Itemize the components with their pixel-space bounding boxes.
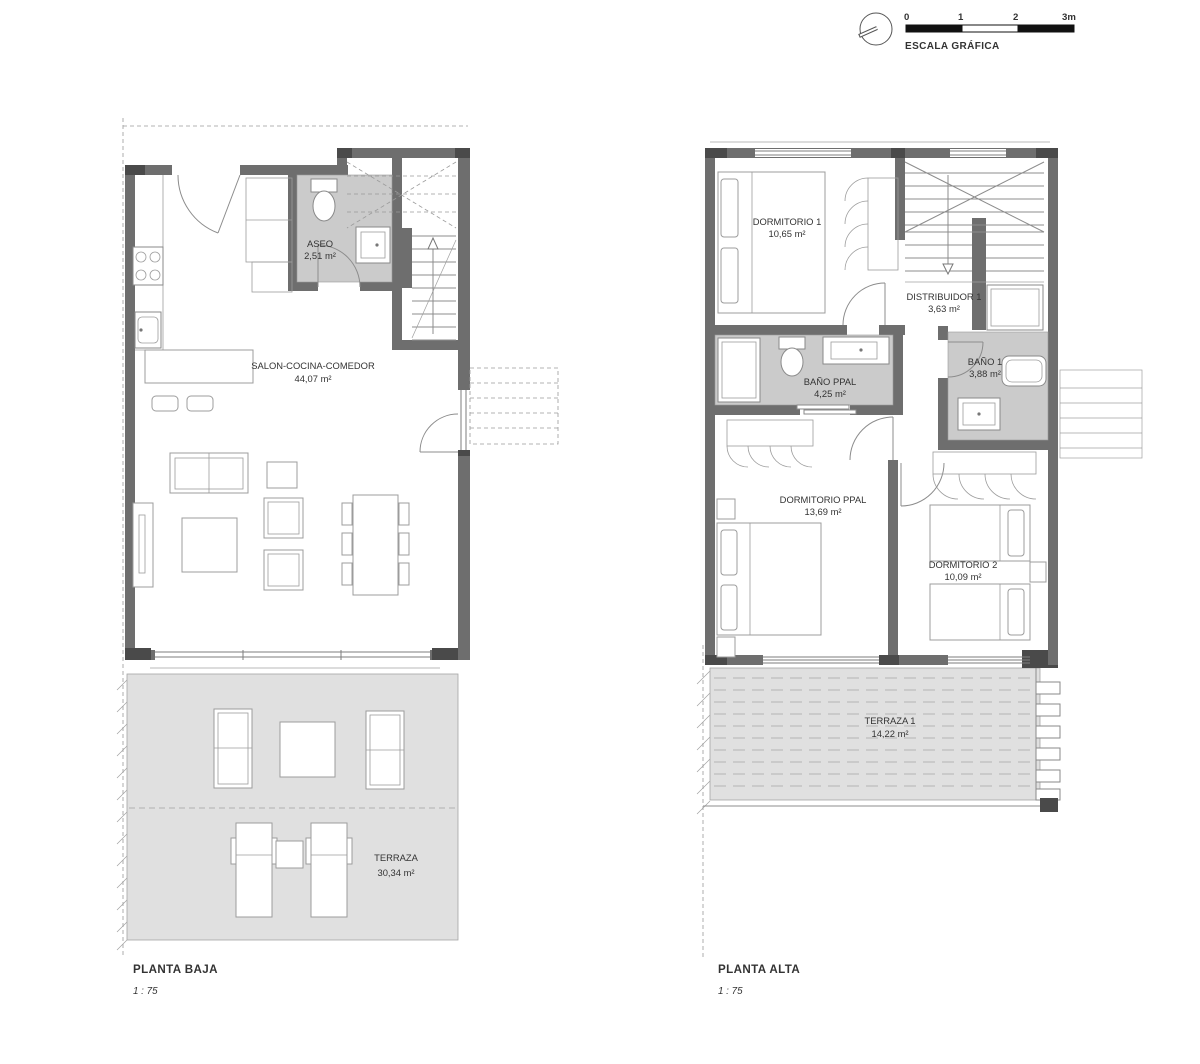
planta-alta-title: PLANTA ALTA [718, 963, 800, 976]
side-table-icon [276, 841, 303, 868]
shower-icon [718, 338, 760, 402]
terrace-floor [127, 674, 458, 940]
sun-lounger-icon [231, 823, 277, 917]
toilet-icon [311, 179, 337, 221]
column [705, 148, 727, 158]
terrace-door-icon [420, 414, 458, 452]
scale-tick-1: 1 [958, 12, 964, 23]
outdoor-table-icon [280, 722, 335, 777]
entrance-door-icon [178, 175, 240, 233]
planta-baja-title: PLANTA BAJA [133, 963, 218, 976]
room-label-bano-ppal-name: BAÑO PPAL [804, 376, 856, 387]
hob-icon [133, 247, 163, 285]
scale-bar-segment [962, 25, 1018, 32]
column [337, 148, 352, 158]
outdoor-chair-icon [366, 711, 404, 789]
scale-tick-2: 2 [1013, 12, 1018, 23]
dorm2-door-icon [901, 463, 944, 506]
toilet-icon [779, 337, 805, 376]
room-label-terraza-name: TERRAZA [374, 852, 419, 863]
room-label-dormitorio-ppal-area: 13,69 m² [805, 506, 842, 517]
room-label-dormitorio-ppal-name: DORMITORIO PPAL [780, 494, 867, 505]
column [891, 148, 905, 158]
planta-baja-plan: TERRAZA 30,34 m² [117, 118, 558, 997]
dorm1-door-icon [843, 283, 885, 325]
room-label-distribuidor1-area: 3,63 m² [928, 303, 960, 314]
room-label-distribuidor1-name: DISTRIBUIDOR 1 [906, 291, 981, 302]
column [125, 648, 151, 660]
tv-unit-icon [133, 503, 153, 587]
room-label-aseo-area: 2,51 m² [304, 250, 336, 261]
planta-alta-plan: TERRAZA 1 14,22 m² [697, 142, 1142, 997]
room-label-dormitorio1-area: 10,65 m² [769, 228, 806, 239]
washbasin-icon [356, 227, 390, 263]
washbasin-icon [958, 398, 1000, 430]
room-label-terraza-area: 30,34 m² [378, 867, 415, 878]
scale-tick-0: 0 [904, 12, 909, 23]
bed-icon [717, 499, 821, 657]
planta-baja-scale: 1 : 75 [133, 986, 158, 997]
exterior-platform [470, 368, 558, 444]
room-label-bano1-name: BAÑO 1 [968, 356, 1002, 367]
sofa-icon [170, 453, 248, 493]
scale-bar-caption: ESCALA GRÁFICA [905, 39, 1000, 52]
column [432, 648, 458, 660]
dorm-ppal-door-icon [850, 417, 893, 460]
room-label-bano-ppal-area: 4,25 m² [814, 388, 846, 399]
planta-alta-scale: 1 : 75 [718, 986, 743, 997]
room-label-dormitorio1-name: DORMITORIO 1 [753, 216, 822, 227]
scale-tick-3: 3m [1062, 12, 1076, 23]
room-label-dormitorio2-area: 10,09 m² [945, 571, 982, 582]
window [458, 390, 470, 450]
single-bed-icon [930, 505, 1030, 561]
kitchen-counter-icon [135, 175, 292, 411]
dining-table-icon [342, 495, 409, 595]
room-label-terraza1-name: TERRAZA 1 [864, 715, 915, 726]
armchair-icon [264, 498, 303, 538]
scale-bar-segment [906, 25, 962, 32]
wardrobe-icon [933, 452, 1036, 499]
sliding-door-icon [797, 405, 856, 414]
column [1030, 655, 1048, 665]
room-label-bano1-area: 3,88 m² [969, 368, 1001, 379]
room-label-salon-name: SALON-COCINA-COMEDOR [251, 360, 375, 371]
room-label-aseo-name: ASEO [307, 238, 333, 249]
north-indicator [859, 13, 892, 45]
sink-icon [135, 312, 161, 348]
room-label-salon-area: 44,07 m² [295, 373, 332, 384]
bathtub-icon [1002, 356, 1046, 386]
floorplan-sheet: 0 1 2 3m ESCALA GRÁFICA [0, 0, 1200, 1064]
single-bed-icon [930, 584, 1030, 640]
washbasin-icon [823, 337, 889, 364]
shower-icon [987, 285, 1043, 330]
sun-lounger-icon [306, 823, 352, 917]
column [125, 165, 145, 175]
exterior-louver [1060, 370, 1142, 458]
wardrobe-icon [845, 178, 898, 270]
coffee-table-icon [182, 518, 237, 572]
scale-bar-segment [1018, 25, 1074, 32]
floorplan-drawing: 0 1 2 3m ESCALA GRÁFICA [0, 0, 1200, 1064]
wardrobe-icon [727, 420, 813, 467]
column [455, 148, 470, 158]
scale-bar: 0 1 2 3m ESCALA GRÁFICA [904, 12, 1076, 52]
outdoor-chair-icon [214, 709, 252, 788]
sliding-glass-door-icon [155, 650, 430, 660]
side-table-icon [267, 462, 297, 488]
armchair-icon [264, 550, 303, 590]
room-label-dormitorio2-name: DORMITORIO 2 [929, 559, 998, 570]
room-label-terraza1-area: 14,22 m² [872, 728, 909, 739]
column [879, 655, 899, 665]
column [1036, 148, 1058, 158]
bed-icon [718, 172, 825, 313]
nightstand-icon [1030, 562, 1046, 582]
boundary-hatch [697, 671, 710, 814]
